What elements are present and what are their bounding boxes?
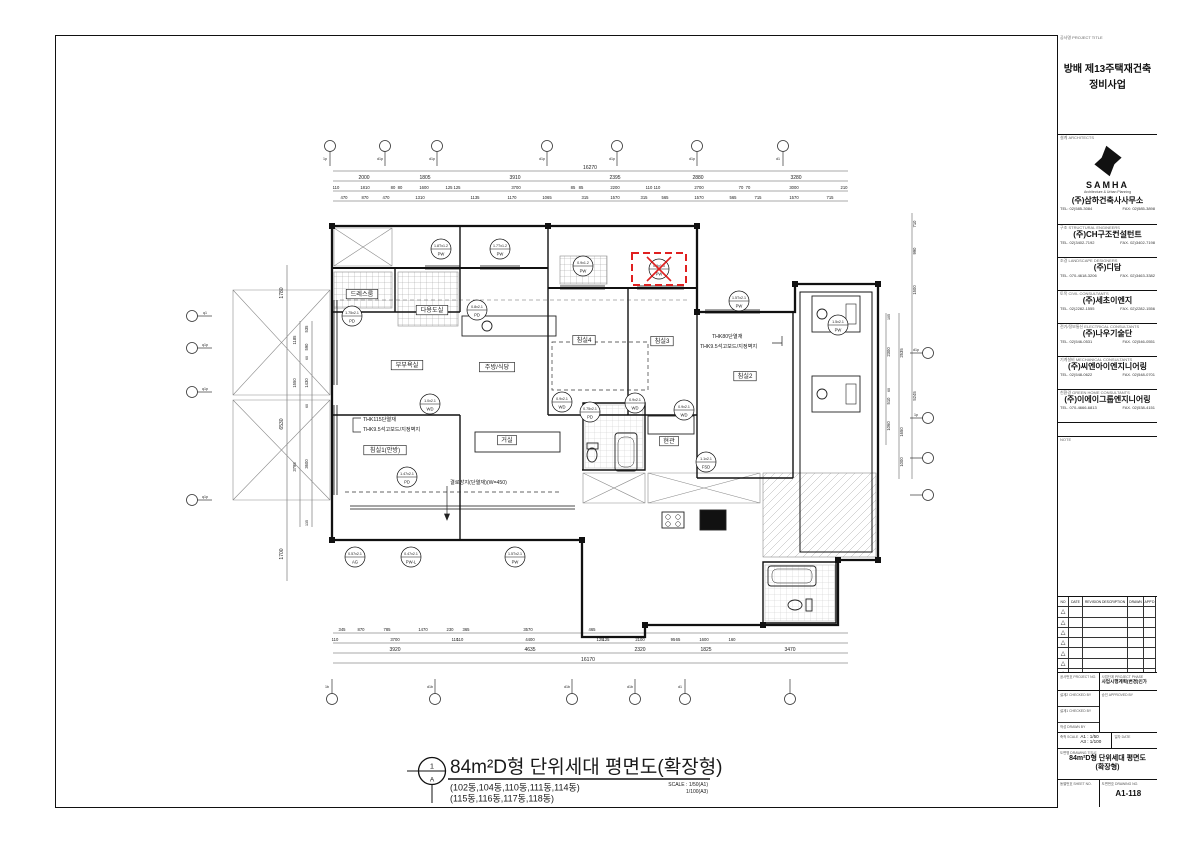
- consultant-fax: FAX. 02)3463-3382: [1120, 273, 1155, 278]
- dim-label: 1060: [886, 421, 891, 431]
- grid-bubble-circle: [430, 694, 441, 705]
- scale-a3: A3 : 1/100: [1080, 739, 1101, 744]
- wall-note: 결로방지(단열재)(W=450): [450, 478, 507, 486]
- dim-label: 565: [730, 195, 738, 200]
- grid-bubble-label: d1p: [609, 157, 615, 161]
- signoff-rows: 설계2 CHECKED BY 설계1 CHECKED BY 작성 DRAWN B…: [1058, 691, 1157, 733]
- revision-cell: [1144, 618, 1156, 628]
- dim-label: 870: [358, 627, 366, 632]
- grid-bubble: q1p: [187, 495, 213, 506]
- tag-size: 0.9x2.1: [678, 405, 690, 409]
- grid-bubble: [785, 679, 796, 705]
- drawn-header: 작성 DRAWN BY: [1058, 723, 1099, 733]
- grid-bubble: q1p: [187, 343, 213, 354]
- tag-type: FSD: [702, 465, 710, 470]
- dim-label: 1570: [789, 195, 799, 200]
- consultant-name: (주)CH구조컨설턴트: [1058, 230, 1157, 239]
- consultant-row: 조경 LANDSCAPE DESIGNERS(주)디담TEL. 070-4618…: [1058, 258, 1157, 291]
- revision-cell: [1069, 628, 1083, 638]
- tag-type: PW: [512, 560, 519, 565]
- tag-size: 1.47x2.1: [400, 472, 414, 476]
- grid-bubble: d1: [776, 141, 789, 167]
- consultant-tel: TEL. 02)3402-7192: [1060, 240, 1094, 245]
- dim-label: 2320: [634, 647, 645, 653]
- grid-bubble-circle: [630, 694, 641, 705]
- dim-label: 1570: [694, 195, 704, 200]
- project-title-box: 공사명 PROJECT TITLE 방배 제13주택재건축 정비사업: [1058, 35, 1157, 135]
- tb-drawing-title-1: 84m²D형 단위세대 평면도: [1058, 755, 1157, 764]
- tag-size: 1.8Tx1.2: [434, 244, 448, 248]
- grid-bubble-circle: [923, 413, 934, 424]
- dim-label: 3795: [292, 462, 297, 472]
- revision-cell: [1144, 638, 1156, 648]
- dim-label: 590: [304, 343, 309, 351]
- room-label-text: 현관: [663, 437, 675, 445]
- revision-cell: [1144, 659, 1156, 669]
- dim-label: 80: [391, 185, 396, 190]
- tag-size: 1.5Tx2.1: [732, 296, 746, 300]
- revision-col-header: NO: [1058, 597, 1069, 607]
- dim-label: 85: [571, 185, 576, 190]
- grid-bubble-circle: [327, 694, 338, 705]
- grid-bubble-circle: [187, 387, 198, 398]
- revision-cell: [1128, 638, 1144, 648]
- revision-col-header: DRAWN: [1128, 597, 1144, 607]
- tag-size: 1.0x2.1: [424, 399, 436, 403]
- consultant-list: 구조 STRUCTURAL ENGINEERS(주)CH구조컨설턴트TEL. 0…: [1058, 225, 1157, 423]
- architect-header: 설계 ARCHITECTS: [1058, 135, 1157, 140]
- room-label: 침실4: [573, 335, 595, 344]
- consultant-row: 기계설비 MECHANICAL CONSULTANTS(주)씨엔아이엔지니어링T…: [1058, 357, 1157, 390]
- grid-bubble: q1p: [187, 387, 213, 398]
- door-window-tag: 1.47x2.1PD: [397, 467, 417, 487]
- consultant-fax: FAX. 02)2282-1556: [1120, 306, 1155, 311]
- revision-cell: [1083, 618, 1128, 628]
- consultant-name: (주)세초이엔지: [1058, 296, 1157, 305]
- grid-bubble-label: d1b: [627, 685, 633, 689]
- room-label: 침실2: [734, 371, 756, 380]
- drawing-title-box: 도면명 DRAWING TITLE 84m²D형 단위세대 평면도 (확장형): [1058, 749, 1157, 780]
- room-label: 다용도실: [416, 305, 448, 314]
- dim-label: 1810: [360, 185, 370, 190]
- logo-wordmark: SAMHA: [1058, 180, 1157, 190]
- grid-bubble-circle: [567, 694, 578, 705]
- grid-bubble-label: q1p: [202, 343, 208, 347]
- dim-label: 16170: [581, 657, 595, 663]
- grid-bubble: q1: [187, 311, 213, 322]
- revision-marker: △: [1058, 638, 1069, 648]
- dim-label: 60: [305, 404, 309, 408]
- door-window-tag: 0.57x2.1AG: [345, 547, 365, 567]
- consultant-name: (주)나우기술단: [1058, 329, 1157, 338]
- consultant-tel: TEL. 070-4666-6813: [1060, 405, 1097, 410]
- dim-label: 470: [341, 195, 349, 200]
- grid-bubble-label: d1b: [427, 685, 433, 689]
- tag-size: 0.9x2.1: [556, 397, 568, 401]
- grid-bubble-label: 1p: [914, 413, 918, 417]
- architect-box: 설계 ARCHITECTS SAMHA Architecture & Urban…: [1058, 135, 1157, 225]
- room-label-text: 침실4: [577, 336, 592, 344]
- revision-cell: [1069, 607, 1083, 617]
- dim-label: 3000: [789, 185, 799, 190]
- tag-type: PD: [474, 313, 480, 318]
- dim-label: 510: [886, 397, 891, 405]
- revision-col-header: APP'D: [1144, 597, 1156, 607]
- door-window-tag: 1.0x2.1WD: [420, 394, 440, 414]
- dim-label: 1470: [418, 627, 428, 632]
- tag-size: 0.47x2.1: [404, 552, 418, 556]
- room-label: 침실3: [651, 336, 673, 345]
- door-window-tag: 0.47x2.1PW-L: [401, 547, 421, 567]
- grid-bubble: 1b: [325, 679, 338, 705]
- revision-cell: [1128, 607, 1144, 617]
- dim-label: 3920: [389, 647, 400, 653]
- dim-label: 715: [827, 195, 835, 200]
- door-window-tag: 0.9x2.1WD: [625, 393, 645, 413]
- dim-label: 1700: [279, 548, 285, 559]
- dim-label: 3700: [390, 637, 400, 642]
- grid-bubble-label: q1p: [202, 495, 208, 499]
- grid-bubble-label: q1p: [202, 387, 208, 391]
- revision-cell: [1128, 618, 1144, 628]
- dim-label: 785: [384, 627, 392, 632]
- room-label: 현관: [660, 436, 679, 445]
- revision-marker: △: [1058, 648, 1069, 658]
- project-no-header: 공사번호 PROJECT NO.: [1058, 673, 1099, 679]
- grid-bubble-label: d1p: [539, 157, 545, 161]
- samha-logo-icon: [1058, 144, 1157, 180]
- sheet-no-row: 동별번호 SHEET NO. 도면번호 DRAWING NO. A1-118: [1058, 780, 1157, 807]
- project-name-line1: 방배 제13주택재건축: [1058, 62, 1157, 78]
- dim-label: 1310: [415, 195, 425, 200]
- dim-label: 1825: [700, 647, 711, 653]
- door-window-tag: 0.75x2.1PD: [580, 402, 600, 422]
- grid-bubble-label: d1p: [913, 348, 919, 352]
- dim-label: 365: [463, 627, 471, 632]
- floor-plan: 1627020001805391023952880328011018108080…: [0, 0, 1191, 842]
- consultant-row: 전기/정보통신 ELECTRICAL CONSULTANTS(주)나우기술단TE…: [1058, 324, 1157, 357]
- dim-label: 1065: [542, 195, 552, 200]
- consultant-name: (주)디담: [1058, 263, 1157, 272]
- drawing-no-value: A1-118: [1100, 789, 1157, 798]
- dim-label: 4400: [525, 637, 535, 642]
- tag-size: 1.1x2.1: [700, 457, 712, 461]
- grid-bubble-circle: [187, 343, 198, 354]
- revision-cell: [1144, 648, 1156, 658]
- grid-bubble: d1p: [910, 348, 934, 359]
- consultant-row: 토목 CIVIL CONSULTANTS(주)세초이엔지TEL. 02)2282…: [1058, 291, 1157, 324]
- grid-bubble: 1p: [323, 141, 336, 167]
- dim-label: 1000: [899, 457, 904, 467]
- project-no-row: 공사번호 PROJECT NO. 사업단계 PROJECT PHASE 사업시행…: [1058, 673, 1157, 691]
- tag-type: WD: [427, 407, 434, 412]
- dim-label: 315: [582, 195, 590, 200]
- revision-cell: [1083, 607, 1128, 617]
- dim-label: 1430: [304, 378, 309, 388]
- wall-note: THK9.5석고보드/지정벽지: [700, 342, 757, 350]
- logo-subtitle: Architecture & Urban Planning: [1058, 190, 1157, 194]
- plan-subtitle-2: (115동,116동,117동,118동): [450, 794, 554, 804]
- room-label: 주방/식당: [479, 362, 514, 371]
- dim-label: 1805: [419, 175, 430, 181]
- grid-bubble-circle: [785, 694, 796, 705]
- room-label: 부부욕실: [391, 360, 423, 369]
- dim-label: 3280: [790, 175, 801, 181]
- drawing-sheet: 1627020001805391023952880328011018108080…: [0, 0, 1191, 842]
- drawing-no-header: 도면번호 DRAWING NO.: [1100, 780, 1157, 786]
- dim-label: 65: [676, 637, 681, 642]
- door-window-tag: 0.9x2.1WD: [674, 400, 694, 420]
- tag-type: PW: [438, 252, 445, 257]
- scale-header: 축척 SCALE: [1058, 733, 1080, 748]
- tag-size: 1.5Tx2.1: [508, 552, 522, 556]
- plan-scale-1: SCALE : 1/50(A1): [668, 782, 708, 788]
- revision-cell: [1069, 648, 1083, 658]
- revision-marker: △: [1058, 628, 1069, 638]
- grid-bubble-circle: [612, 141, 623, 152]
- dim-label: 1500: [912, 285, 917, 295]
- tag-size: 0.9x2.1: [629, 398, 641, 402]
- dim-label: 2395: [609, 175, 620, 181]
- grid-bubble-circle: [432, 141, 443, 152]
- dim-label: 2300: [886, 347, 891, 357]
- tag-type: PD: [404, 480, 410, 485]
- consultant-name: (주)씨엔아이엔지니어링: [1058, 362, 1157, 371]
- tag-type: PW: [580, 269, 587, 274]
- dim-label: 2535: [899, 348, 904, 358]
- project-name-line2: 정비사업: [1058, 78, 1157, 94]
- tag-type: PD: [349, 319, 355, 324]
- tag-size: 1.75x2.1: [345, 311, 359, 315]
- dim-label: 990: [912, 247, 917, 255]
- dim-label: 3700: [511, 185, 521, 190]
- grid-bubble-circle: [778, 141, 789, 152]
- bldg-no-header: 동별번호 SHEET NO.: [1058, 780, 1099, 786]
- room-label-text: 침실2: [738, 372, 753, 380]
- dim-label: 80: [398, 185, 403, 190]
- room-label-text: 주방/식당: [485, 363, 510, 371]
- revision-col-header: DATE: [1069, 597, 1083, 607]
- room-label-text: 드레스룸: [351, 290, 374, 298]
- grid-bubble-circle: [692, 141, 703, 152]
- dim-label: 125: [454, 185, 462, 190]
- door-window-tag: 1.5Tx2.1PW: [505, 547, 525, 567]
- tag-size: 0.57x2.1: [348, 552, 362, 556]
- drawing-title-block: 1 A 84m²D형 단위세대 평면도(확장형) (102동,104동,110동…: [407, 756, 723, 804]
- revision-cell: [1083, 648, 1128, 658]
- dim-label: 6530: [279, 418, 285, 429]
- room-label-text: 부부욕실: [396, 361, 419, 369]
- tag-size: 0.8x2.1: [471, 305, 483, 309]
- dim-label: 1780: [279, 287, 285, 298]
- revision-cell: [1128, 659, 1144, 669]
- tag-size: 0.75x2.1: [583, 407, 597, 411]
- grid-bubble-label: 1b: [325, 685, 329, 689]
- revision-table: NODATEREVISION DESCRIPTIONDRAWNAPP'D△△△△…: [1058, 597, 1157, 673]
- revision-marker: △: [1058, 618, 1069, 628]
- revision-cell: [1083, 628, 1128, 638]
- dim-label: 110: [457, 637, 464, 642]
- door-window-tag: 0.9x1.2PW: [573, 256, 593, 276]
- door-window-tag: 1.75x2.1PD: [342, 306, 362, 326]
- dim-label: 210: [841, 185, 849, 190]
- dim-label: 160: [729, 637, 737, 642]
- dim-label: 1550: [292, 378, 297, 388]
- dim-label: 2880: [692, 175, 703, 181]
- dim-label: 125: [603, 637, 611, 642]
- wall-note: THK115단열재: [363, 415, 396, 423]
- door-window-tag: 1.5Tx2.1PW: [729, 291, 749, 311]
- grid-bubble-circle: [187, 311, 198, 322]
- project-title-header: 공사명 PROJECT TITLE: [1058, 35, 1157, 40]
- dim-label: 535: [304, 325, 309, 333]
- dim-label: 110: [332, 637, 339, 642]
- grid-bubble: 1p: [910, 413, 934, 424]
- revision-cell: [1083, 659, 1128, 669]
- highlighted-window-tag[interactable]: 0.9x1.5PW: [632, 253, 686, 285]
- note-box: NOTE: [1058, 437, 1157, 597]
- dim-label: 70: [739, 185, 744, 190]
- dim-label: 3470: [784, 647, 795, 653]
- architect-tel: TEL: 02)585-3084: [1060, 206, 1092, 211]
- door-window-tag: 1.8Tx1.2PW: [431, 239, 451, 259]
- grid-bubble-label: d1p: [429, 157, 435, 161]
- consultant-row: 친환경 GREEN HOME CONSULTANTS(주)이에이그룹엔지니어링T…: [1058, 390, 1157, 423]
- dim-label: 465: [589, 627, 597, 632]
- grid-bubble-label: d1: [678, 685, 682, 689]
- dim-label: 2100: [635, 637, 645, 642]
- grid-bubble-label: 1p: [323, 157, 327, 161]
- plan-subtitle-1: (102동,104동,110동,111동,114동): [450, 783, 580, 793]
- consultant-fax: FAX. 02)548-0701: [1123, 372, 1155, 377]
- dim-label: 4635: [524, 647, 535, 653]
- grid-bubble: d1b: [564, 679, 578, 705]
- dim-label: 110: [333, 185, 340, 190]
- revision-marker: △: [1058, 659, 1069, 669]
- grid-bubble-circle: [680, 694, 691, 705]
- grid-bubble: d1p: [609, 141, 623, 167]
- grid-bubble: [910, 490, 934, 501]
- plan-title: 84m²D형 단위세대 평면도(확장형): [450, 756, 723, 778]
- dim-label: 1600: [419, 185, 429, 190]
- wall-note: THK9.5석고보드/지정벽지: [363, 425, 420, 433]
- tag-type: PW-L: [406, 560, 417, 565]
- dim-label: 60: [887, 388, 891, 392]
- wall-note: THK80단열재: [712, 332, 743, 340]
- dim-label: 3600: [304, 459, 309, 469]
- grid-bubble: d1: [678, 679, 691, 705]
- door-window-tag: 1.5x2.1PW: [828, 315, 848, 335]
- consultant-name: (주)이에이그룹엔지니어링: [1058, 395, 1157, 404]
- dim-label: 715: [755, 195, 763, 200]
- tb-drawing-title-2: (확장형): [1058, 764, 1157, 773]
- dim-label: 60: [305, 356, 309, 360]
- grid-bubble: d1b: [427, 679, 441, 705]
- dim-label: 1570: [610, 195, 620, 200]
- revision-cell: [1144, 628, 1156, 638]
- room-label: 드레스룸: [346, 289, 378, 298]
- consultant-row: 구조 STRUCTURAL ENGINEERS(주)CH구조컨설턴트TEL. 0…: [1058, 225, 1157, 258]
- detail-marker-number: 1: [430, 762, 434, 771]
- room-label: 침실1(안방): [364, 445, 406, 454]
- dim-label: 2200: [610, 185, 620, 190]
- revision-cell: [1128, 648, 1144, 658]
- dim-label: 230: [447, 627, 455, 632]
- checked2-header: 설계2 CHECKED BY: [1058, 691, 1099, 707]
- approved-header: 승인 APPROVED BY: [1100, 691, 1157, 697]
- consultant-fax: FAX. 02)538-4151: [1123, 405, 1155, 410]
- door-window-tag: 0.9x2.1WD: [552, 392, 572, 412]
- tag-type: PW: [835, 328, 842, 333]
- dim-label: 2700: [694, 185, 704, 190]
- dim-label: 315: [641, 195, 649, 200]
- tag-type: PW: [497, 252, 504, 257]
- room-label-text: 침실3: [655, 337, 670, 345]
- revision-cell: [1144, 607, 1156, 617]
- consultant-tel: TEL. 02)546-0531: [1060, 339, 1092, 344]
- grid-bubble-label: d1b: [564, 685, 570, 689]
- tag-type: WD: [559, 405, 566, 410]
- dim-label: 1650: [899, 427, 904, 437]
- tag-type: WD: [632, 406, 639, 411]
- consultant-tel: TEL. 02)2282-1555: [1060, 306, 1094, 311]
- grid-bubble-circle: [380, 141, 391, 152]
- tag-size: 0.9x1.2: [577, 261, 589, 265]
- dim-label: 2000: [358, 175, 369, 181]
- tag-size: 1.5x2.1: [832, 320, 844, 324]
- grid-bubble: [910, 453, 934, 464]
- dim-label: 1600: [699, 637, 709, 642]
- note-header: NOTE: [1058, 437, 1157, 442]
- dim-label: 110: [646, 185, 653, 190]
- consultant-tel: TEL. 070-4618-3206: [1060, 273, 1097, 278]
- room-label-text: 거실: [501, 436, 513, 444]
- grid-bubble: d1p: [377, 141, 391, 167]
- dim-label: 135: [305, 520, 309, 526]
- dim-label: 5245: [912, 391, 917, 401]
- door-window-tag: 1.1x2.1FSD: [696, 452, 716, 472]
- revision-cell: [1069, 659, 1083, 669]
- dim-label: 70: [746, 185, 751, 190]
- grid-bubble: d1p: [539, 141, 553, 167]
- dim-label: 110: [654, 185, 661, 190]
- grid-bubble-circle: [923, 453, 934, 464]
- door-window-tag: 1.7Tx1.2PW: [490, 239, 510, 259]
- title-block: 공사명 PROJECT TITLE 방배 제13주택재건축 정비사업 설계 AR…: [1057, 35, 1157, 808]
- consultant-tel: TEL. 02)548-0622: [1060, 372, 1092, 377]
- grid-bubble-label: q1: [203, 311, 207, 315]
- dim-label: 16270: [583, 165, 597, 171]
- tag-type: AG: [352, 560, 358, 565]
- revision-cell: [1128, 628, 1144, 638]
- date-header: 일자 DATE: [1112, 733, 1157, 739]
- grid-bubble-circle: [542, 141, 553, 152]
- grid-bubble-circle: [923, 490, 934, 501]
- grid-bubble-circle: [187, 495, 198, 506]
- dim-label: 125: [446, 185, 454, 190]
- grid-bubble-label: d1p: [689, 157, 695, 161]
- door-window-tag: 0.8x2.1PD: [467, 300, 487, 320]
- revision-cell: [1069, 638, 1083, 648]
- plan-scale-2: 1/100(A3): [686, 789, 708, 795]
- revision-marker: △: [1058, 607, 1069, 617]
- grid-bubble-circle: [923, 348, 934, 359]
- grid-bubble: d1p: [689, 141, 703, 167]
- dim-label: 870: [362, 195, 370, 200]
- dim-label: 85: [579, 185, 584, 190]
- revision-col-header: REVISION DESCRIPTION: [1083, 597, 1128, 607]
- tag-size: 1.7Tx1.2: [493, 244, 507, 248]
